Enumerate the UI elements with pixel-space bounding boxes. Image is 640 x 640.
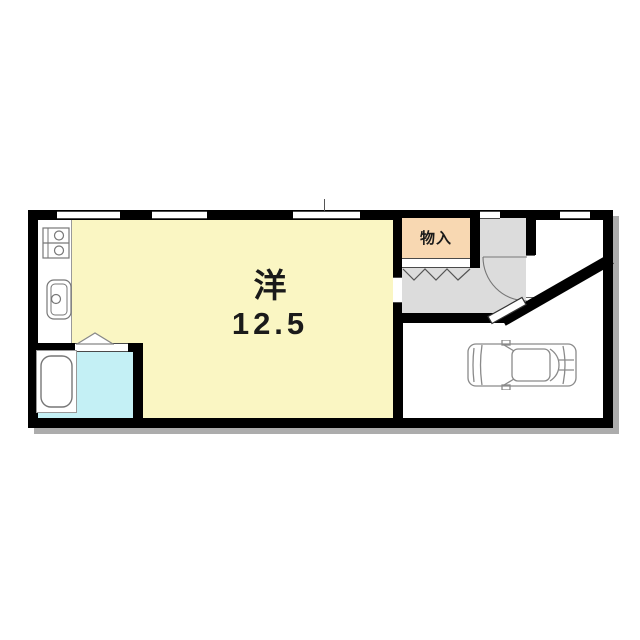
window-center-tick <box>324 199 325 211</box>
window-opening <box>560 211 590 219</box>
zigzag-closet-door-icon <box>401 267 471 282</box>
storage-wall-right <box>470 218 480 268</box>
bathroom-wall-right <box>133 343 143 418</box>
window-opening <box>293 211 360 219</box>
stove-icon <box>42 227 70 259</box>
car-icon <box>466 340 578 390</box>
diagonal-wall <box>480 250 620 330</box>
floor-plan-image: 物入 <box>0 0 640 640</box>
main-room-name: 洋 <box>150 266 390 306</box>
sink-icon <box>46 279 72 320</box>
bathtub-icon <box>36 350 77 413</box>
storage-label: 物入 <box>402 218 470 258</box>
window-opening <box>152 211 207 219</box>
window-opening <box>57 211 120 219</box>
window-opening <box>480 211 500 219</box>
bath-folding-door-icon <box>76 330 114 345</box>
main-room-size: 12.5 <box>150 306 390 342</box>
main-room-label: 洋 12.5 <box>150 266 390 342</box>
hall-wall-right <box>526 210 536 255</box>
